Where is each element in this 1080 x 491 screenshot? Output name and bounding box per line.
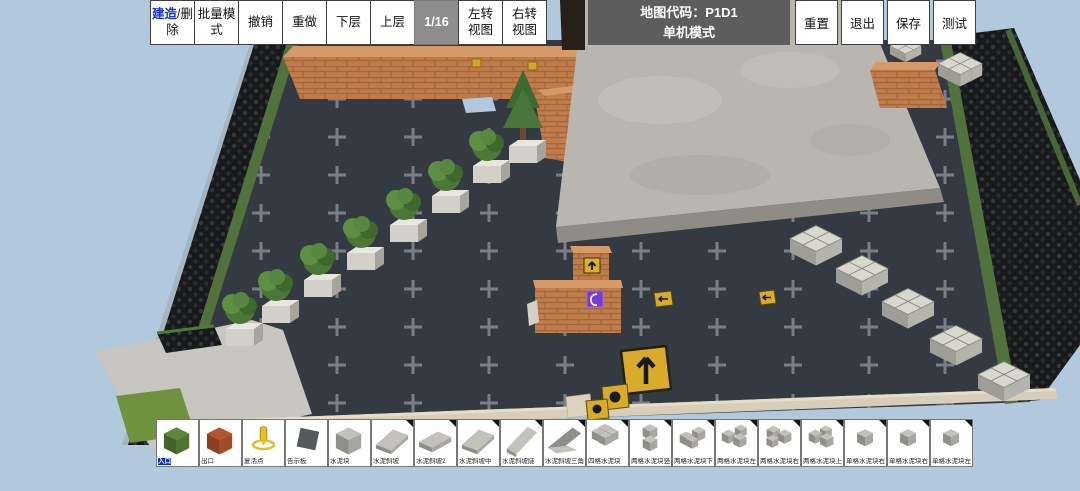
palette-item-grid2u[interactable]: 两格水泥块上 [801, 419, 844, 467]
planter [432, 190, 469, 213]
corner-marker-icon [836, 420, 843, 427]
palette-item-grid2v[interactable]: 两格水泥块竖 [629, 419, 672, 467]
dark-wall-strip [560, 0, 585, 50]
batch-mode-button[interactable]: 批量模 式 [194, 0, 239, 45]
up-arrow-sign [584, 258, 600, 273]
game-mode: 单机模式 [663, 23, 715, 43]
toolbar-right: 重置 退出 保存 测试 [795, 0, 976, 45]
palette-item-grid2d[interactable]: 两格水泥块下 [672, 419, 715, 467]
palette-item-board[interactable]: 告示板 [285, 419, 328, 467]
palette-item-label: 单格水泥块左下 [932, 458, 971, 465]
undo-button[interactable]: 撤销 [238, 0, 283, 45]
palette-item-slope3[interactable]: 水泥斜坡陡 [500, 419, 543, 467]
build-delete-button[interactable]: 建造/删除 [150, 0, 195, 45]
palette-item-label: 两格水泥块竖 [631, 458, 670, 465]
corner-marker-icon [922, 420, 929, 427]
corner-marker-icon [879, 420, 886, 427]
corner-marker-icon [406, 420, 413, 427]
toolbar-left: 建造/删除 批量模 式 撤销 重做 下层 上层 1/16 左转 视图 右转 视图 [150, 0, 547, 45]
rotate-view-left-button[interactable]: 左转 视图 [458, 0, 503, 45]
redo-button[interactable]: 重做 [282, 0, 327, 45]
palette-item-label: 告示板 [287, 458, 307, 465]
left-arrow-tile [654, 291, 673, 307]
reset-button[interactable]: 重置 [795, 0, 838, 45]
palette-item-grid2l[interactable]: 两格水泥块左 [715, 419, 758, 467]
corner-marker-icon [621, 420, 628, 427]
coin-item [528, 62, 537, 70]
palette-item-label: 两格水泥块右 [760, 458, 799, 465]
big-up-arrow-tile [621, 346, 671, 394]
palette-item-grid1[interactable]: 单格水泥块右上 [844, 419, 887, 467]
palette-item-grid1[interactable]: 单格水泥块右下 [887, 419, 930, 467]
palette-item-cube[interactable]: 出口 [199, 419, 242, 467]
palette-item-label: 水泥块 [330, 458, 350, 465]
corner-marker-icon [965, 420, 972, 427]
palette-item-label: 水泥斜坡陡 [502, 458, 535, 465]
item-palette: 入口出口复活点告示板水泥块水泥斜坡水泥斜坡2水泥斜坡中水泥斜坡陡水泥斜坡三角四格… [156, 419, 973, 467]
exit-button[interactable]: 退出 [841, 0, 884, 45]
pin-icon [243, 421, 284, 459]
planter [473, 160, 510, 183]
planter [226, 323, 263, 346]
corner-marker-icon [664, 420, 671, 427]
palette-item-slope[interactable]: 水泥斜坡中 [457, 419, 500, 467]
palette-item-label: 水泥斜坡2 [416, 458, 446, 465]
palette-item-label: 单格水泥块右下 [889, 458, 928, 465]
planter [304, 274, 341, 297]
test-button[interactable]: 测试 [933, 0, 976, 45]
palette-item-label: 两格水泥块左 [717, 458, 756, 465]
coin-item [472, 59, 481, 67]
corner-marker-icon [793, 420, 800, 427]
brick-patch [870, 62, 947, 108]
planter [262, 300, 299, 323]
palette-item-grid1[interactable]: 单格水泥块左下 [930, 419, 973, 467]
map-info-plate: 地图代码：P1D1 单机模式 [588, 0, 790, 45]
palette-item-label: 水泥斜坡三角 [545, 458, 584, 465]
palette-item-pin[interactable]: 复活点 [242, 419, 285, 467]
layer-up-button[interactable]: 上层 [370, 0, 415, 45]
palette-item-wedge[interactable]: 水泥斜坡三角 [543, 419, 586, 467]
corner-marker-icon [578, 420, 585, 427]
palette-item-label: 四格水泥块 [588, 458, 621, 465]
build-label: 建造 [152, 7, 177, 21]
cube-icon [157, 421, 198, 459]
palette-item-cube[interactable]: 入口 [156, 419, 199, 467]
map-code: 地图代码：P1D1 [640, 3, 738, 23]
map-viewport[interactable] [0, 0, 1080, 491]
palette-item-label: 水泥斜坡 [373, 458, 399, 465]
palette-item-grid2r[interactable]: 两格水泥块右 [758, 419, 801, 467]
corner-marker-icon [535, 420, 542, 427]
left-arrow-tile [759, 290, 776, 305]
corner-marker-icon [492, 420, 499, 427]
palette-item-label: 两格水泥块上 [803, 458, 842, 465]
palette-item-cube[interactable]: 水泥块 [328, 419, 371, 467]
planter [390, 219, 427, 242]
corner-marker-icon [750, 420, 757, 427]
planter [347, 247, 384, 270]
dot-tile [586, 399, 609, 420]
corner-marker-icon [449, 420, 456, 427]
rotate-view-right-button[interactable]: 右转 视图 [502, 0, 547, 45]
sky-gap [462, 97, 496, 113]
palette-item-label: 水泥斜坡中 [459, 458, 492, 465]
palette-item-label: 入口 [158, 458, 171, 465]
layer-down-button[interactable]: 下层 [326, 0, 371, 45]
respawn-marker [587, 291, 603, 307]
palette-item-label: 单格水泥块右上 [846, 458, 885, 465]
corner-marker-icon [707, 420, 714, 427]
board-icon [286, 421, 327, 459]
cube-icon [329, 421, 370, 459]
palette-item-label: 复活点 [244, 458, 264, 465]
palette-item-slope2[interactable]: 水泥斜坡2 [414, 419, 457, 467]
save-button[interactable]: 保存 [887, 0, 930, 45]
cube-icon [200, 421, 241, 459]
palette-item-slope[interactable]: 水泥斜坡 [371, 419, 414, 467]
layer-indicator: 1/16 [414, 0, 459, 45]
palette-item-grid4[interactable]: 四格水泥块 [586, 419, 629, 467]
palette-item-label: 出口 [201, 458, 214, 465]
palette-item-label: 两格水泥块下 [674, 458, 713, 465]
